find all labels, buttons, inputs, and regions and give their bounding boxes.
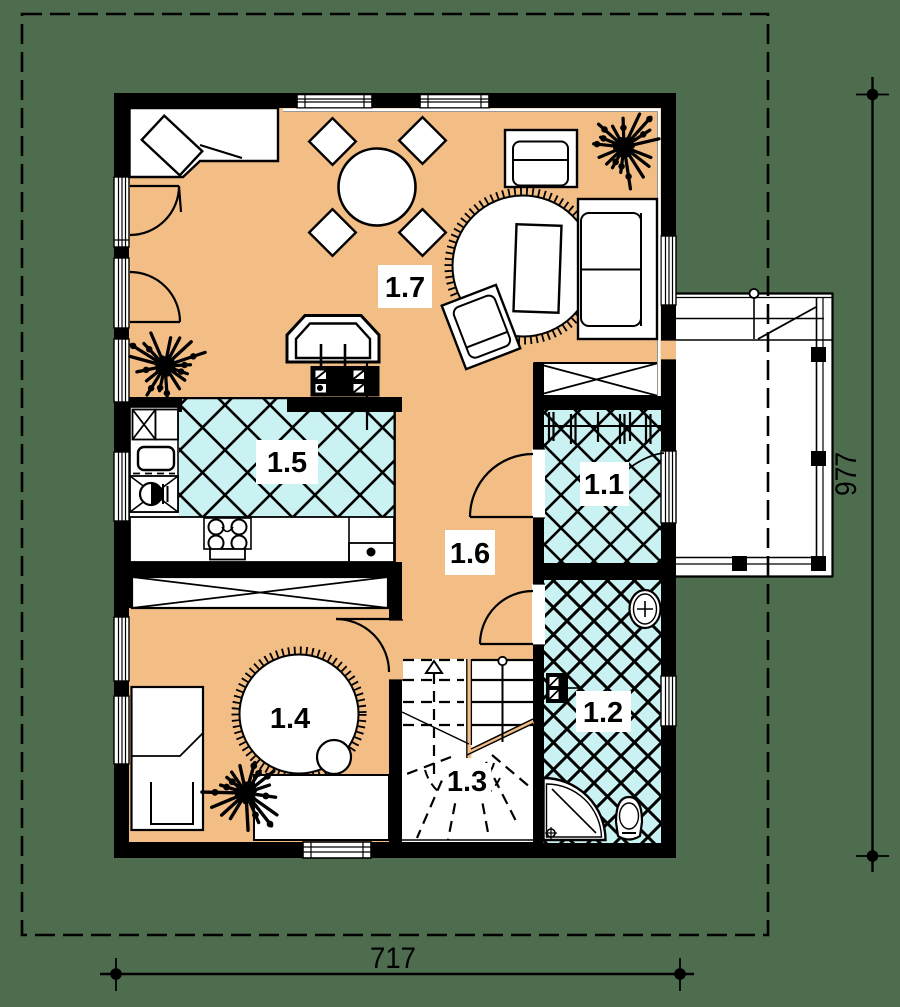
svg-text:1.2: 1.2 xyxy=(583,697,623,729)
svg-text:1.5: 1.5 xyxy=(267,447,307,479)
svg-text:1.6: 1.6 xyxy=(450,538,490,570)
svg-text:977: 977 xyxy=(830,452,863,496)
svg-text:1.4: 1.4 xyxy=(270,703,310,735)
svg-text:1.1: 1.1 xyxy=(584,469,624,501)
svg-text:1.7: 1.7 xyxy=(385,272,425,304)
svg-text:717: 717 xyxy=(370,942,416,975)
svg-text:1.3: 1.3 xyxy=(447,766,487,798)
